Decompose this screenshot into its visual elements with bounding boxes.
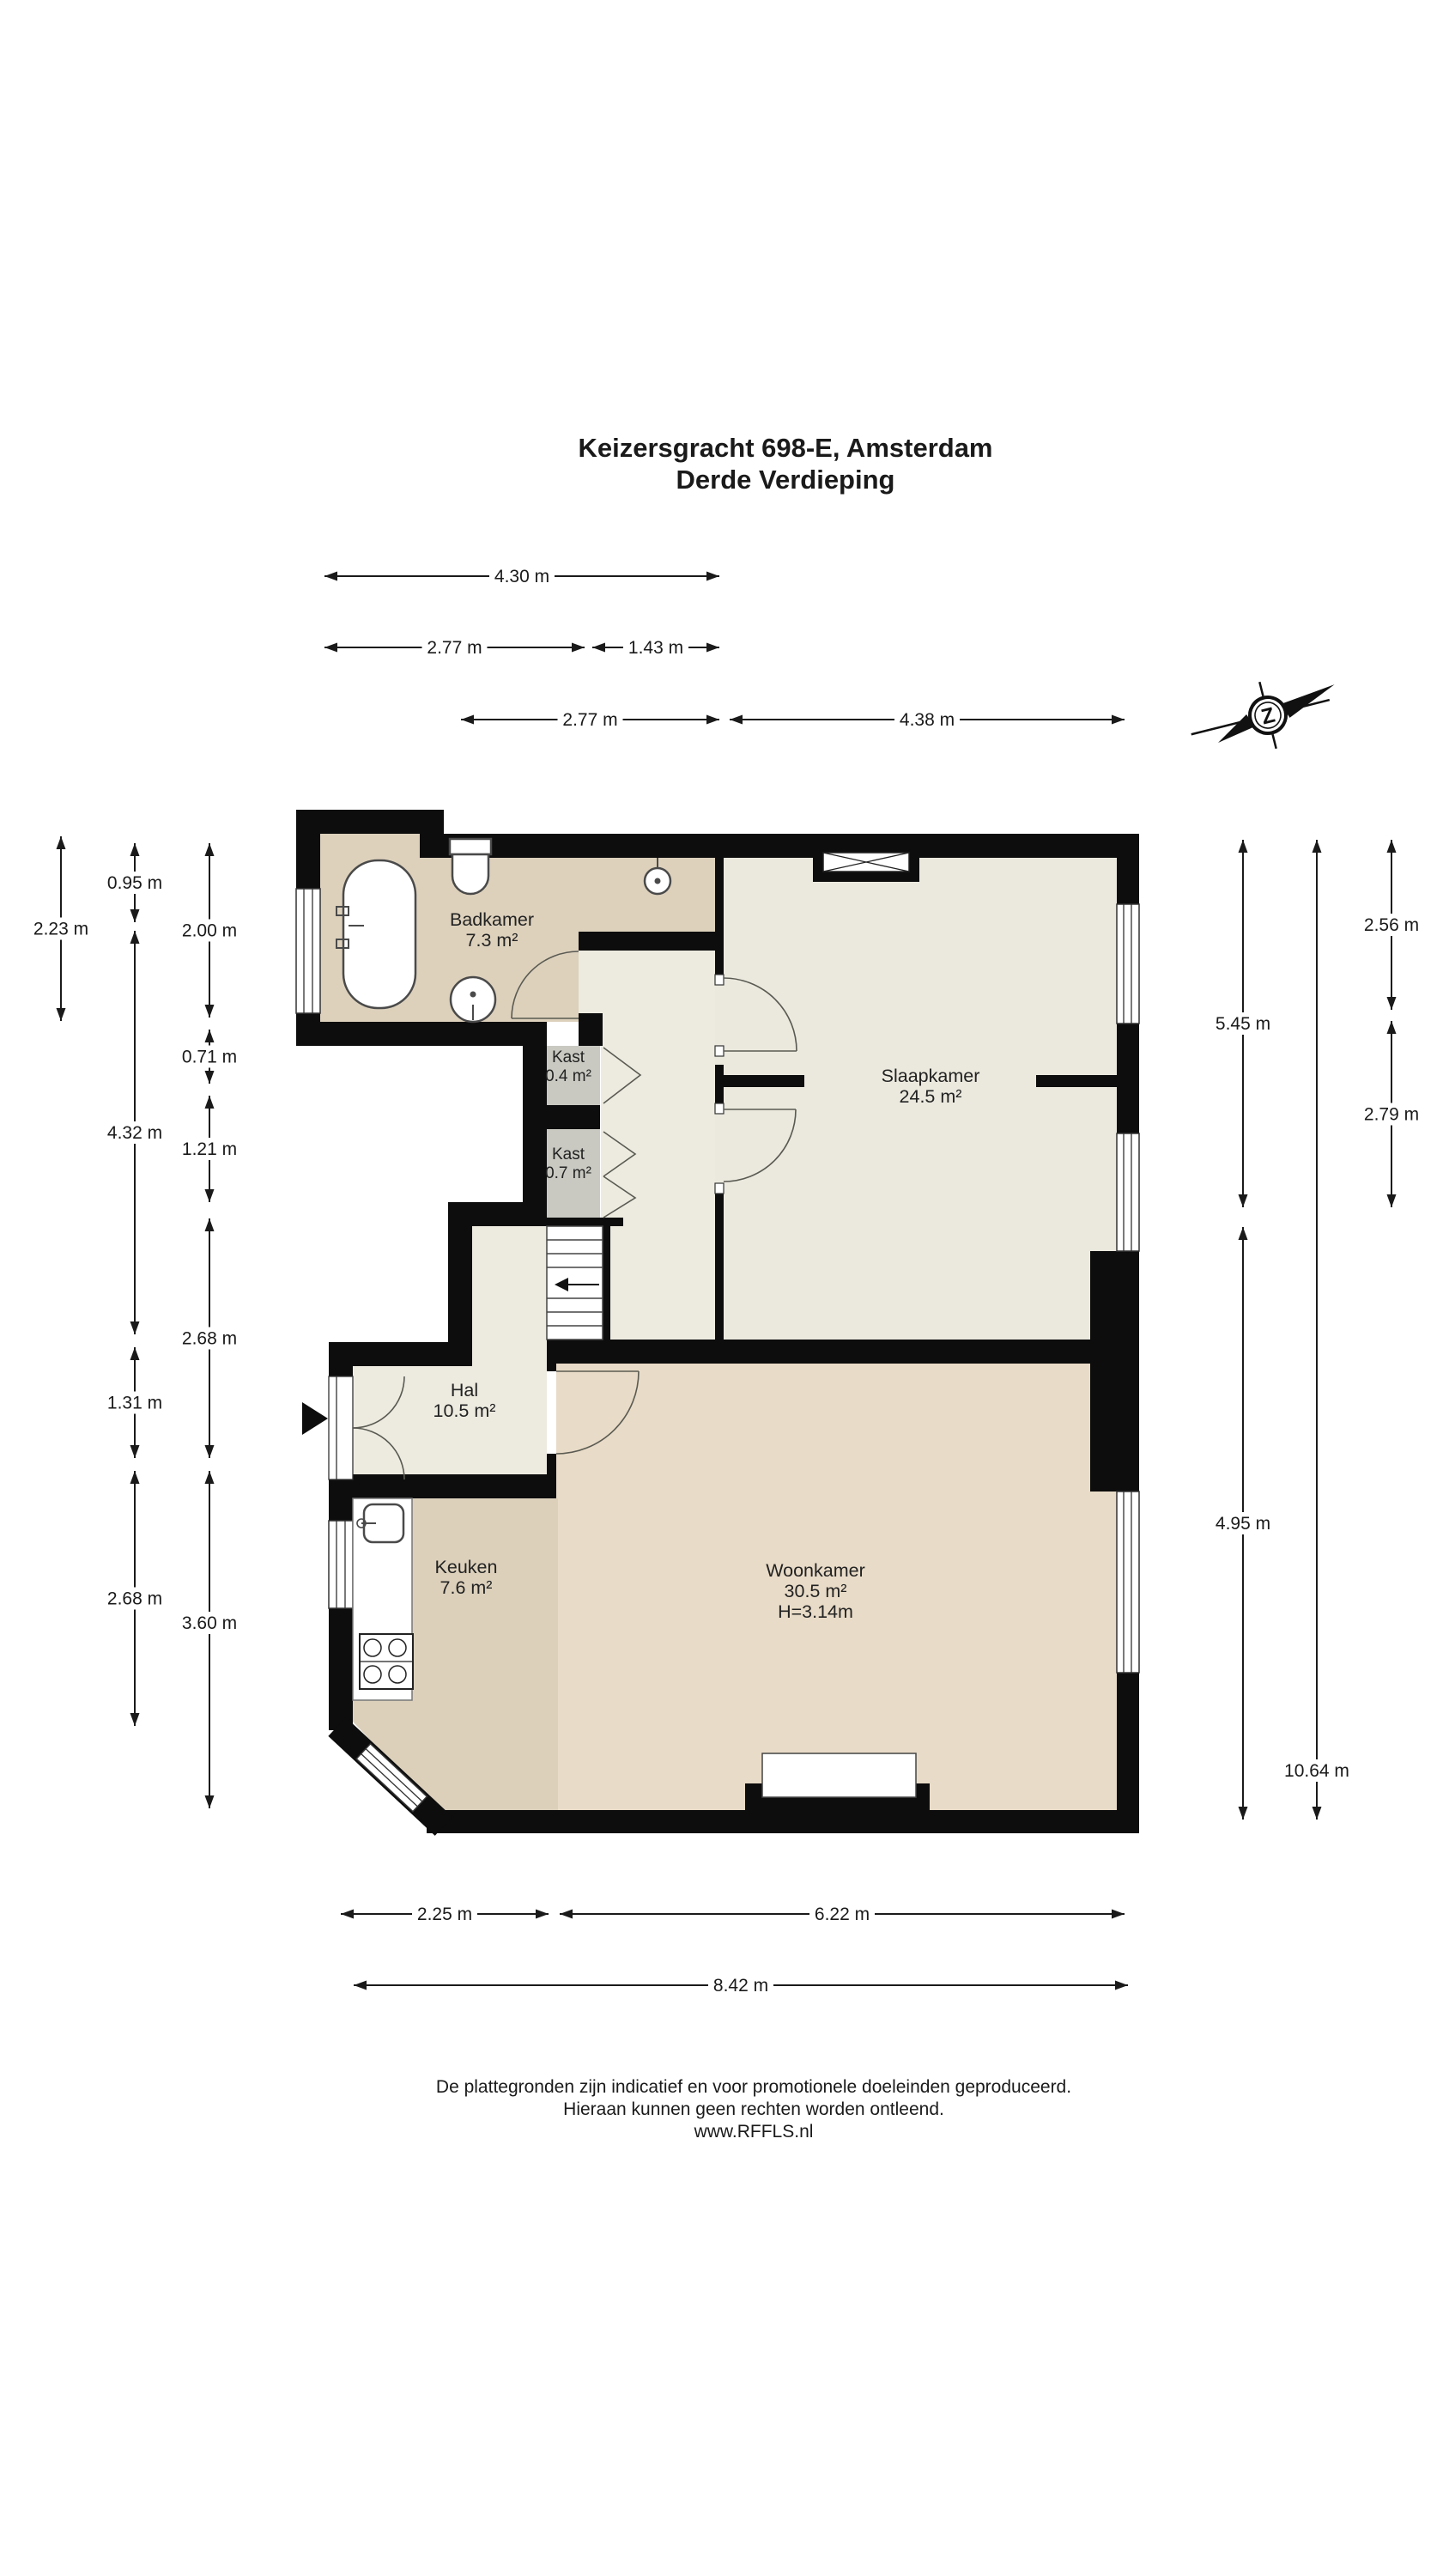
dimension: 2.77 m — [461, 708, 719, 731]
dimension-label: 2.25 m — [417, 1905, 472, 1924]
dimension-label: 4.30 m — [494, 567, 549, 586]
dimension: 2.79 m — [1359, 1021, 1424, 1207]
dimension: 2.68 m — [102, 1471, 167, 1726]
dimension: 4.38 m — [730, 708, 1125, 731]
fireplace-niche — [745, 1753, 930, 1833]
dimension-label: 2.79 m — [1364, 1105, 1419, 1125]
dimension: 2.25 m — [341, 1903, 549, 1925]
staircase — [547, 1226, 603, 1340]
room-name: Badkamer — [450, 909, 534, 930]
dimension-label: 3.60 m — [182, 1613, 237, 1633]
room-name: Kast — [552, 1145, 585, 1163]
bathroom-sink — [451, 977, 495, 1022]
room-area: 7.6 m² — [440, 1577, 493, 1598]
dimension: 1.43 m — [592, 636, 719, 659]
dimension: 3.60 m — [177, 1471, 242, 1808]
hall-corridor — [601, 951, 715, 1342]
window-keuken — [329, 1521, 353, 1608]
dimension: 5.45 m — [1210, 840, 1276, 1207]
room-label-kast: Kast0.7 m² — [545, 1145, 591, 1182]
dimension: 2.00 m — [177, 843, 242, 1018]
dimension-label: 1.31 m — [107, 1394, 162, 1413]
room-name: Hal — [451, 1380, 478, 1400]
dimension: 8.42 m — [354, 1974, 1128, 1996]
disclaimer-line-1: De plattegronden zijn indicatief en voor… — [410, 2076, 1097, 2099]
room-area: 0.7 m² — [545, 1164, 591, 1182]
disclaimer-website: www.RFFLS.nl — [410, 2121, 1097, 2143]
window-woonkamer — [1117, 1492, 1139, 1673]
flue-vent — [813, 846, 919, 882]
toilet — [450, 839, 491, 894]
dimension-label: 1.21 m — [182, 1139, 237, 1159]
room-height-note: H=3.14m — [778, 1601, 853, 1622]
room-name: Keuken — [435, 1557, 498, 1577]
dimension-label: 2.77 m — [427, 638, 482, 658]
room-name: Slaapkamer — [882, 1066, 980, 1086]
room-badkamer-shower-nook — [579, 858, 715, 932]
dimension-label: 4.32 m — [107, 1123, 162, 1143]
room-name: Woonkamer — [766, 1560, 865, 1581]
room-area: 7.3 m² — [466, 930, 518, 951]
dimension: 4.30 m — [324, 565, 719, 587]
dimension-label: 5.45 m — [1216, 1014, 1270, 1034]
dimension-label: 4.38 m — [900, 710, 955, 730]
dimension: 4.95 m — [1210, 1227, 1276, 1820]
dimension: 10.64 m — [1280, 840, 1355, 1820]
dimension: 6.22 m — [560, 1903, 1125, 1925]
dimension-label: 2.68 m — [182, 1329, 237, 1349]
dimension-label: 1.43 m — [628, 638, 683, 658]
disclaimer: De plattegronden zijn indicatief en voor… — [410, 2076, 1097, 2143]
bathtub — [336, 860, 415, 1008]
window-badkamer — [296, 889, 320, 1013]
window-slaapkamer-1 — [1117, 904, 1139, 1024]
entrance-arrow — [302, 1402, 328, 1435]
room-area: 10.5 m² — [433, 1400, 496, 1421]
dimension: 2.68 m — [177, 1218, 242, 1458]
dimension-label: 6.22 m — [815, 1905, 870, 1924]
dimension-label: 2.23 m — [33, 920, 88, 939]
dimension: 1.31 m — [102, 1347, 167, 1458]
dimension: 0.71 m — [177, 1030, 242, 1084]
dimension-label: 2.68 m — [107, 1589, 162, 1609]
dimension: 2.56 m — [1359, 840, 1424, 1010]
dimension-label: 2.00 m — [182, 921, 237, 941]
dimension: 2.23 m — [28, 836, 94, 1021]
dimension-label: 0.71 m — [182, 1048, 237, 1067]
dimension-label: 4.95 m — [1216, 1514, 1270, 1534]
compass: Z — [1183, 665, 1346, 768]
compass-needle-east — [1280, 684, 1340, 719]
dimension-label: 10.64 m — [1284, 1761, 1349, 1781]
room-name: Kast — [552, 1048, 585, 1066]
dimension: 1.21 m — [177, 1096, 242, 1202]
dimension-label: 2.77 m — [562, 710, 617, 730]
room-area: 0.4 m² — [545, 1067, 591, 1085]
dimension: 0.95 m — [102, 843, 167, 922]
dimension-label: 2.56 m — [1364, 915, 1419, 935]
disclaimer-line-2: Hieraan kunnen geen rechten worden ontle… — [410, 2099, 1097, 2121]
room-area: 24.5 m² — [900, 1086, 962, 1107]
dimension-label: 8.42 m — [713, 1976, 768, 1996]
floor-plan-drawing: Z 4.30 m2.77 m1.43 m2.77 m4.38 m2.23 m0.… — [0, 0, 1449, 2576]
dimension: 2.77 m — [324, 636, 585, 659]
dimension: 4.32 m — [102, 931, 167, 1334]
room-label-keuken: Keuken7.6 m² — [435, 1557, 498, 1598]
floor-plan-page: Keizersgracht 698-E, Amsterdam Derde Ver… — [0, 0, 1449, 2576]
window-slaapkamer-2 — [1117, 1133, 1139, 1251]
stove — [360, 1634, 413, 1689]
dimension-label: 0.95 m — [107, 873, 162, 893]
room-area: 30.5 m² — [785, 1581, 847, 1601]
room-label-kast: Kast0.4 m² — [545, 1048, 591, 1085]
